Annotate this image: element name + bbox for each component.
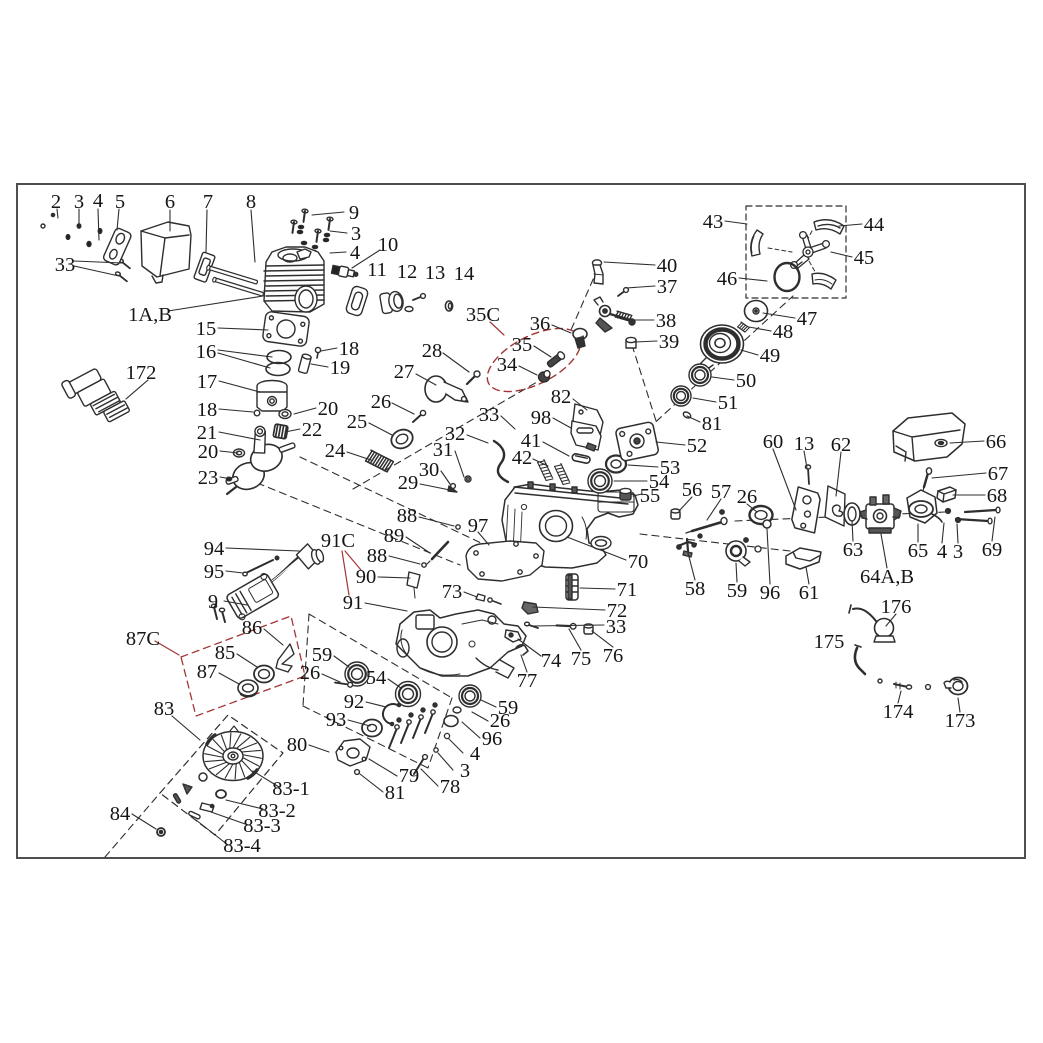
svg-text:10: 10	[378, 234, 399, 256]
svg-text:17: 17	[197, 371, 218, 393]
svg-text:35: 35	[512, 334, 533, 356]
svg-text:91: 91	[343, 592, 364, 614]
svg-text:4: 4	[350, 242, 360, 264]
svg-text:33: 33	[479, 404, 500, 426]
svg-text:96: 96	[482, 728, 503, 750]
svg-text:4: 4	[470, 743, 480, 765]
svg-text:66: 66	[986, 431, 1007, 453]
svg-text:87: 87	[197, 661, 218, 683]
svg-text:39: 39	[659, 331, 680, 353]
svg-text:91C: 91C	[321, 530, 355, 552]
svg-text:89: 89	[384, 525, 405, 547]
svg-text:74: 74	[541, 650, 562, 672]
svg-text:77: 77	[517, 670, 538, 692]
svg-text:26: 26	[737, 486, 758, 508]
svg-text:31: 31	[433, 439, 454, 461]
svg-text:6: 6	[165, 191, 175, 213]
svg-text:93: 93	[326, 709, 347, 731]
svg-text:50: 50	[736, 370, 757, 392]
svg-text:28: 28	[422, 340, 443, 362]
svg-text:85: 85	[215, 642, 236, 664]
svg-text:58: 58	[685, 578, 706, 600]
svg-text:56: 56	[682, 479, 703, 501]
svg-text:83-4: 83-4	[223, 835, 261, 857]
svg-text:8: 8	[246, 191, 256, 213]
svg-text:95: 95	[204, 561, 225, 583]
svg-text:2: 2	[51, 191, 61, 213]
svg-text:26: 26	[300, 662, 321, 684]
svg-text:62: 62	[831, 434, 852, 456]
svg-text:48: 48	[773, 321, 794, 343]
svg-text:49: 49	[760, 345, 781, 367]
svg-text:78: 78	[440, 776, 461, 798]
svg-text:81: 81	[702, 413, 723, 435]
svg-text:43: 43	[703, 211, 724, 233]
svg-text:63: 63	[843, 539, 864, 561]
svg-text:45: 45	[854, 247, 875, 269]
svg-text:59: 59	[727, 580, 748, 602]
svg-text:36: 36	[530, 313, 551, 335]
svg-text:88: 88	[397, 505, 418, 527]
svg-text:14: 14	[454, 263, 475, 285]
svg-text:68: 68	[987, 485, 1008, 507]
svg-text:92: 92	[344, 691, 365, 713]
svg-text:35C: 35C	[466, 304, 500, 326]
svg-text:54: 54	[366, 667, 387, 689]
svg-text:12: 12	[397, 261, 418, 283]
svg-text:15: 15	[196, 318, 217, 340]
svg-text:37: 37	[657, 276, 678, 298]
svg-text:80: 80	[287, 734, 308, 756]
svg-text:97: 97	[468, 515, 489, 537]
svg-text:83-1: 83-1	[272, 778, 310, 800]
svg-text:23: 23	[198, 467, 219, 489]
svg-text:176: 176	[881, 596, 912, 618]
svg-text:11: 11	[367, 259, 387, 281]
svg-text:86: 86	[242, 617, 263, 639]
svg-text:52: 52	[687, 435, 708, 457]
svg-text:18: 18	[197, 399, 218, 421]
svg-text:94: 94	[204, 538, 225, 560]
svg-text:69: 69	[982, 539, 1003, 561]
svg-text:88: 88	[367, 545, 388, 567]
svg-text:65: 65	[908, 540, 929, 562]
svg-text:3: 3	[74, 191, 84, 213]
svg-text:33: 33	[55, 254, 76, 276]
svg-text:57: 57	[711, 481, 732, 503]
svg-text:3: 3	[953, 541, 963, 563]
svg-text:29: 29	[398, 472, 419, 494]
svg-text:24: 24	[325, 440, 346, 462]
svg-text:81: 81	[385, 782, 406, 804]
svg-text:34: 34	[497, 354, 518, 376]
svg-text:51: 51	[718, 392, 739, 414]
svg-text:83-3: 83-3	[243, 815, 281, 837]
svg-text:90: 90	[356, 566, 377, 588]
svg-text:76: 76	[603, 645, 624, 667]
svg-text:173: 173	[945, 710, 976, 732]
svg-text:4: 4	[937, 541, 947, 563]
svg-text:84: 84	[110, 803, 131, 825]
svg-text:25: 25	[347, 411, 368, 433]
svg-text:20: 20	[198, 441, 219, 463]
svg-text:60: 60	[763, 431, 784, 453]
svg-text:5: 5	[115, 191, 125, 213]
svg-text:7: 7	[203, 191, 213, 213]
svg-text:75: 75	[571, 648, 592, 670]
svg-text:13: 13	[425, 262, 446, 284]
svg-text:55: 55	[640, 485, 661, 507]
svg-text:82: 82	[551, 386, 572, 408]
svg-text:71: 71	[617, 579, 638, 601]
svg-text:4: 4	[93, 190, 103, 212]
svg-text:67: 67	[988, 463, 1009, 485]
svg-text:33: 33	[606, 616, 627, 638]
svg-text:22: 22	[302, 419, 323, 441]
svg-text:3: 3	[460, 760, 470, 782]
svg-text:19: 19	[330, 357, 351, 379]
svg-text:27: 27	[394, 361, 415, 383]
svg-text:26: 26	[371, 391, 392, 413]
svg-text:38: 38	[656, 310, 677, 332]
svg-text:1A,B: 1A,B	[128, 304, 172, 326]
svg-text:70: 70	[628, 551, 649, 573]
svg-text:20: 20	[318, 398, 339, 420]
svg-text:64A,B: 64A,B	[860, 566, 914, 588]
svg-text:61: 61	[799, 582, 820, 604]
svg-text:9: 9	[208, 591, 218, 613]
svg-text:172: 172	[126, 362, 157, 384]
svg-text:44: 44	[864, 214, 885, 236]
svg-text:13: 13	[794, 433, 815, 455]
svg-text:9: 9	[349, 202, 359, 224]
svg-text:174: 174	[883, 701, 914, 723]
svg-text:46: 46	[717, 268, 738, 290]
svg-text:73: 73	[442, 581, 463, 603]
svg-text:42: 42	[512, 447, 533, 469]
svg-text:96: 96	[760, 582, 781, 604]
svg-text:16: 16	[196, 341, 217, 363]
svg-text:87C: 87C	[126, 628, 160, 650]
svg-text:83: 83	[154, 698, 175, 720]
svg-text:40: 40	[657, 255, 678, 277]
svg-text:175: 175	[814, 631, 845, 653]
svg-text:47: 47	[797, 308, 818, 330]
svg-text:30: 30	[419, 459, 440, 481]
svg-text:98: 98	[531, 407, 552, 429]
